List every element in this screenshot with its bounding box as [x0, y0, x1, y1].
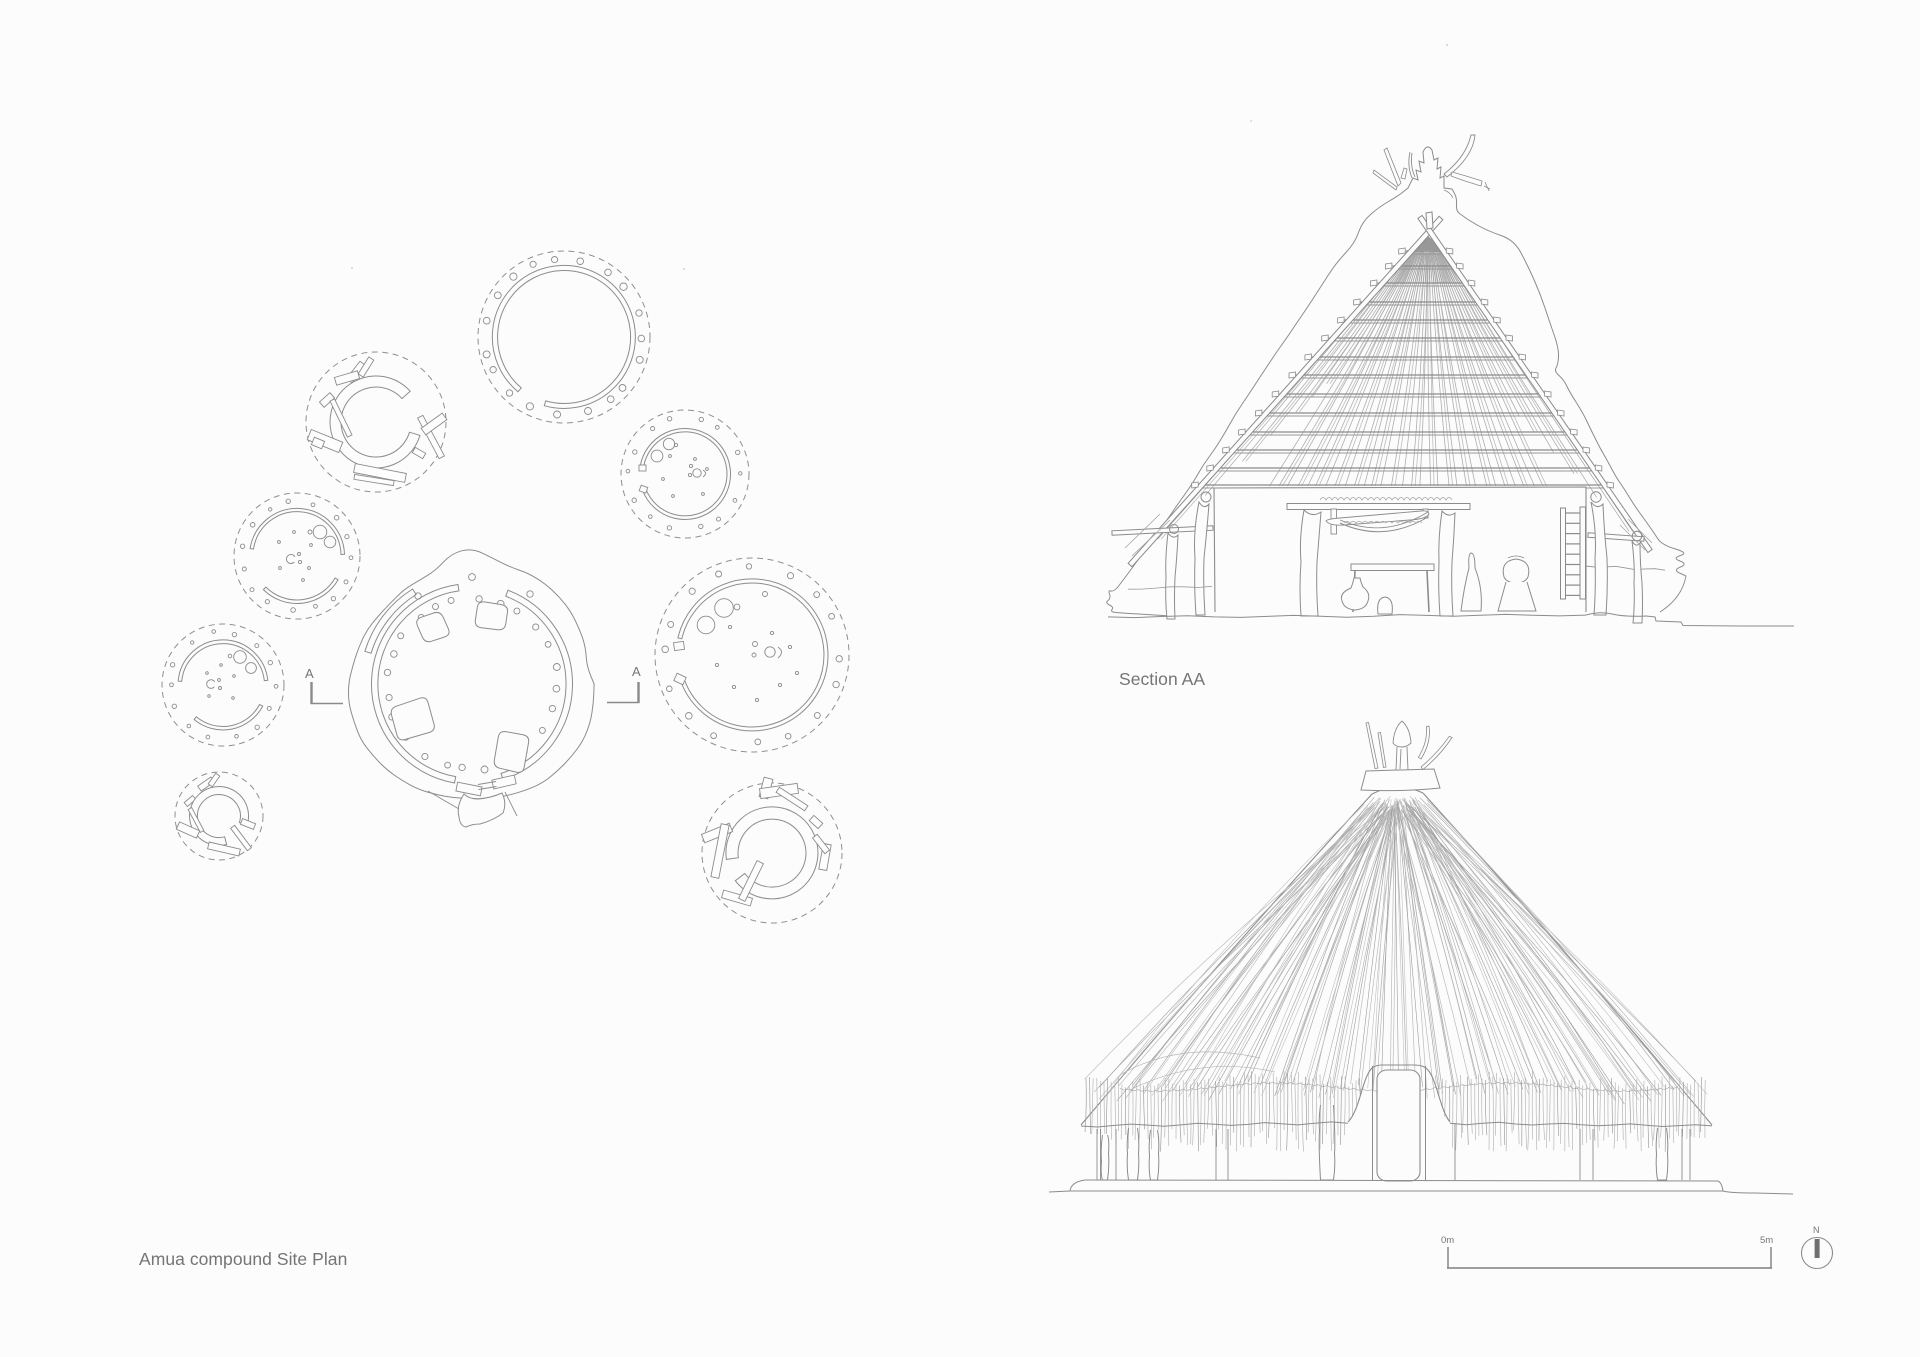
svg-text:N: N	[1813, 1225, 1820, 1235]
svg-text:A: A	[305, 666, 314, 681]
svg-text:0m: 0m	[1441, 1235, 1454, 1246]
svg-text:Amua compound Site Plan: Amua compound Site Plan	[139, 1249, 347, 1269]
svg-text:Section AA: Section AA	[1119, 669, 1205, 689]
svg-text:5m: 5m	[1760, 1235, 1773, 1246]
svg-text:A: A	[632, 664, 641, 679]
